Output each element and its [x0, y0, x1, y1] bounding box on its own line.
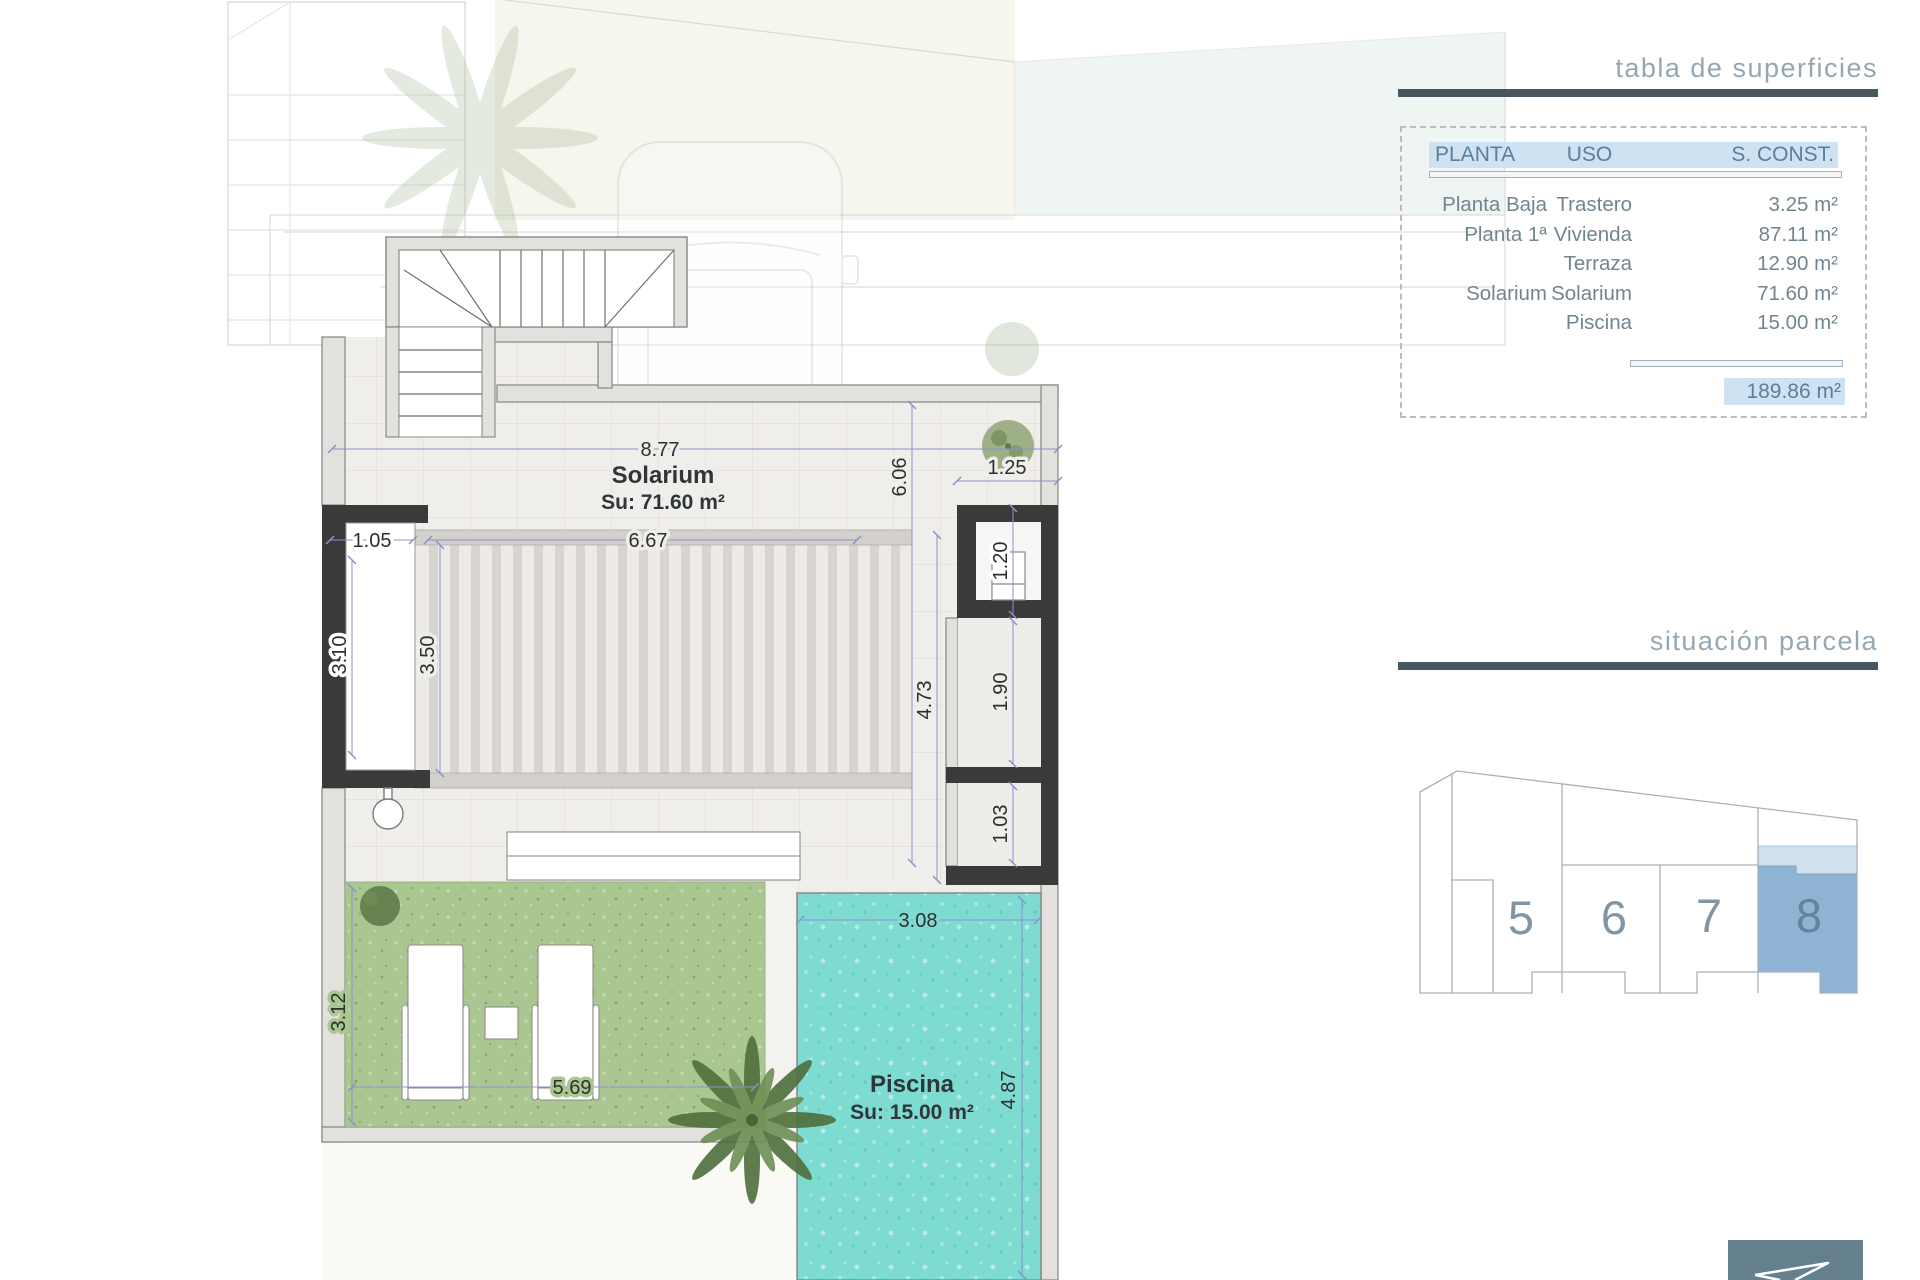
solarium-area-label: Su: 71.60 m²	[601, 491, 725, 514]
dim-pergola-depth: 3.50	[417, 636, 439, 675]
dim-store-depth: 1.03	[990, 805, 1012, 844]
parcel-6-number: 6	[1601, 891, 1627, 944]
bush-icon	[360, 886, 400, 926]
bench	[507, 832, 800, 880]
pergola	[415, 530, 912, 788]
dim-left-depth: 3.10	[329, 636, 351, 675]
left-wall-lower	[322, 788, 345, 1142]
dim-pool-depth: 4.87	[998, 1071, 1020, 1110]
surfaces-table: PLANTA USO S. CONST. Planta Baja Traster…	[1400, 126, 1867, 418]
piscina-area-label: Su: 15.00 m²	[850, 1101, 974, 1124]
dim-pergola-width: 6.67	[629, 530, 668, 552]
top-wall	[497, 385, 1058, 402]
cell-planta: Solarium	[1429, 279, 1547, 309]
total-surface: 189.86 m²	[1724, 378, 1845, 405]
dim-pool-width: 3.08	[899, 910, 938, 932]
dim-terrace-depth: 4.73	[914, 681, 936, 720]
dim-shaft-depth: 1.20	[990, 542, 1012, 581]
total-divider-bar	[1630, 360, 1843, 367]
dim-right-depth: 6.06	[889, 458, 911, 497]
room-left-wall	[946, 618, 958, 866]
cell-uso: Trastero	[1547, 190, 1632, 220]
builder-logo	[1728, 1240, 1863, 1280]
parcel-diagram: 5 6 7 8	[1420, 771, 1857, 993]
parcel-8-number: 8	[1796, 889, 1822, 942]
cell-sconst: 87.11 m²	[1632, 220, 1838, 250]
bush-highlight	[364, 892, 378, 906]
dim-garden-width: 5.69	[553, 1077, 592, 1099]
table-row: Piscina 15.00 m²	[1429, 308, 1838, 338]
header-divider-bar	[1429, 171, 1842, 178]
pergola-beam-bottom	[415, 773, 912, 788]
piscina-label: Piscina	[870, 1071, 955, 1098]
cell-sconst: 71.60 m²	[1632, 279, 1838, 309]
cell-sconst: 15.00 m²	[1632, 308, 1838, 338]
surfaces-table-header: PLANTA USO S. CONST.	[1429, 142, 1838, 168]
dim-room-depth: 1.90	[990, 673, 1012, 712]
surfaces-table-title: tabla de superficies	[1398, 53, 1878, 84]
left-planter-strip	[346, 523, 415, 770]
surfaces-title-rule	[1398, 89, 1878, 97]
cell-planta: Planta Baja	[1429, 190, 1547, 220]
parcel-7-number: 7	[1696, 889, 1722, 942]
table-row: Terraza 12.90 m²	[1429, 249, 1838, 279]
solarium-label: Solarium	[612, 462, 715, 489]
parcel-5-number: 5	[1508, 891, 1534, 944]
header-sconst: S. CONST.	[1632, 143, 1838, 167]
left-wall-upper	[322, 337, 345, 505]
cell-planta: Planta 1ª	[1429, 220, 1547, 250]
header-planta: PLANTA	[1429, 143, 1547, 167]
tree-ghost-icon	[985, 322, 1039, 376]
palm-tree-icon	[668, 1036, 836, 1204]
cell-planta	[1429, 308, 1547, 338]
table-row: Planta 1ª Vivienda 87.11 m²	[1429, 220, 1838, 250]
cell-uso: Terraza	[1547, 249, 1632, 279]
side-table	[485, 1007, 518, 1039]
bottom-wall	[322, 1127, 765, 1142]
dim-garden-depth: 3.12	[328, 993, 350, 1032]
dim-top-width: 8.77	[641, 439, 680, 461]
pergola-slats	[429, 545, 900, 773]
table-row: Planta Baja Trastero 3.25 m²	[1429, 190, 1838, 220]
cell-uso: Piscina	[1547, 308, 1632, 338]
lounger-1	[408, 945, 463, 1100]
parcel-map-title: situación parcela	[1398, 626, 1878, 657]
cell-sconst: 12.90 m²	[1632, 249, 1838, 279]
cell-uso: Vivienda	[1547, 220, 1632, 250]
stair-side-wall-b	[598, 342, 612, 388]
cell-planta	[1429, 249, 1547, 279]
cell-uso: Solarium	[1547, 279, 1632, 309]
lower-paving	[322, 1142, 797, 1280]
parcel-title-rule	[1398, 662, 1878, 670]
dim-left-opening: 1.05	[353, 530, 392, 552]
surfaces-table-body: Planta Baja Trastero 3.25 m² Planta 1ª V…	[1429, 190, 1838, 338]
header-uso: USO	[1547, 143, 1632, 167]
table-row: Solarium Solarium 71.60 m²	[1429, 279, 1838, 309]
dim-shaft-width: 1.25	[988, 457, 1027, 479]
cell-sconst: 3.25 m²	[1632, 190, 1838, 220]
